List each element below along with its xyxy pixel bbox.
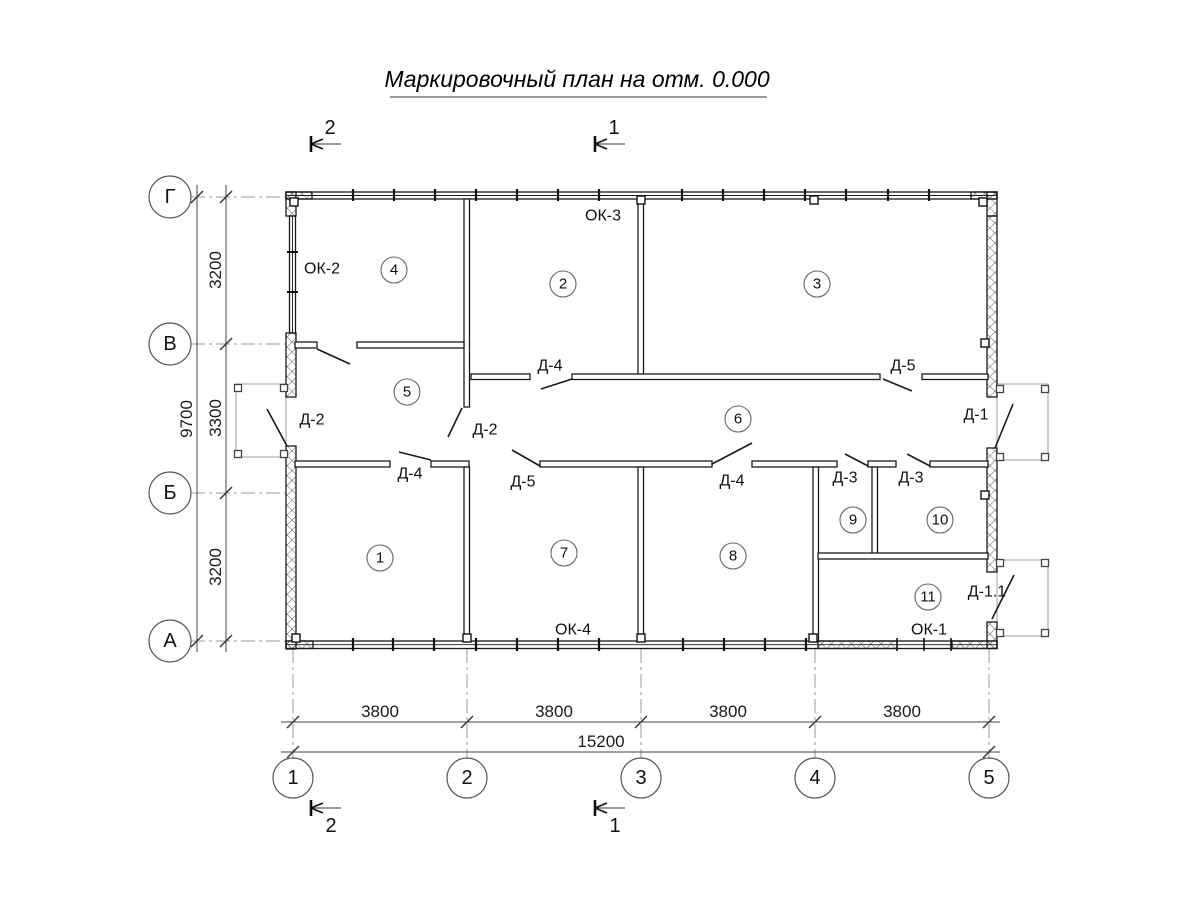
axis-lines: [191, 197, 989, 758]
wall-joint-marker: [290, 198, 298, 206]
corridor-lower-wall-4: [752, 461, 837, 467]
axis-col-5: 5: [969, 758, 1009, 798]
corridor-lower-wall-1: [295, 461, 390, 467]
door-mark-d4-room2: Д-4: [537, 358, 562, 375]
wall-hatch-bottom-right: [952, 641, 997, 649]
section-mark-1-bottom: 1: [595, 800, 625, 837]
room-number-label: 6: [734, 411, 742, 428]
axis-row-v: В: [149, 323, 191, 365]
room-number-label: 10: [932, 512, 949, 529]
wall-joint-marker: [463, 634, 471, 642]
room-11: 11: [915, 584, 941, 610]
axis-label: 3: [635, 767, 646, 789]
partition-room7-room8: [638, 467, 644, 641]
door-mark-d2-entrance: Д-2: [299, 412, 324, 429]
door-leaf-d2-hall: [448, 408, 462, 437]
corridor-lower-wall-6: [930, 461, 988, 467]
partition-room4-room2: [464, 199, 470, 407]
dim-3800-4: 3800: [883, 702, 921, 721]
room-7: 7: [551, 540, 577, 566]
door-mark-d1: Д-1: [963, 407, 988, 424]
wall-hatch-left-bottom: [286, 446, 296, 649]
dim-3800-2: 3800: [535, 702, 573, 721]
door-leaf-d3-room10: [907, 454, 930, 466]
corridor-upper-wall-2: [572, 374, 880, 380]
wall-joint-marker: [292, 634, 300, 642]
wall-hatch-bottom-mid: [818, 641, 897, 649]
porch-post: [235, 451, 242, 458]
room-number-label: 8: [729, 548, 737, 565]
room-2: 2: [550, 271, 576, 297]
room-6: 6: [725, 406, 751, 432]
axis-label: 2: [461, 767, 472, 789]
partition-room910-room11: [818, 553, 988, 559]
wall-hatch-right-upper: [987, 216, 997, 397]
door-mark-d4-room1: Д-4: [397, 466, 422, 483]
section-number: 1: [608, 117, 619, 139]
porch-post: [1042, 386, 1049, 393]
partition-room1-room7: [464, 467, 470, 641]
wall-hatch-right-top: [987, 192, 997, 216]
porch-post: [235, 385, 242, 392]
porch-post: [997, 454, 1004, 461]
wall-joint-marker: [637, 196, 645, 204]
page-title: Маркировочный план на отм. 0.000: [384, 66, 769, 92]
dim-3800-3: 3800: [709, 702, 747, 721]
grid-axis-bubbles: Г В Б А 1 2 3 4 5: [149, 176, 1009, 798]
porch-post: [997, 560, 1004, 567]
window-marks: ОК-2 ОК-3 ОК-4 ОК-1: [304, 208, 947, 639]
room-5: 5: [394, 379, 420, 405]
door-leaf-d2-entrance: [267, 409, 287, 446]
door-leaf-d5-room3: [883, 379, 912, 391]
wall-joint-marker: [979, 198, 987, 206]
drawing-sheet: Маркировочный план на отм. 0.000 3800 38…: [0, 0, 1200, 900]
wall-joint-marker: [809, 634, 817, 642]
dim-9700: 9700: [177, 400, 196, 438]
room-number-label: 4: [390, 262, 398, 279]
partition-room2-room3: [638, 199, 644, 375]
axis-label: 1: [287, 767, 298, 789]
room-number-label: 5: [403, 384, 411, 401]
porch-post: [1042, 454, 1049, 461]
dim-3300: 3300: [206, 399, 225, 437]
door-leaf-d1: [995, 404, 1013, 448]
door-leaf-d4-room1: [399, 452, 431, 460]
section-mark-1-top: 1: [595, 117, 625, 152]
section-number: 1: [609, 815, 620, 837]
door-mark-d3-room10: Д-3: [898, 470, 923, 487]
door-mark-d1-1: Д-1.1: [968, 584, 1007, 601]
floor-plan-drawing: Маркировочный план на отм. 0.000 3800 38…: [0, 0, 1200, 900]
upper-right-porch: [997, 384, 1048, 460]
dim-3800-1: 3800: [361, 702, 399, 721]
room-number-label: 7: [560, 545, 568, 562]
section-number: 2: [324, 117, 335, 139]
axis-col-2: 2: [447, 758, 487, 798]
drawing-title-block: Маркировочный план на отм. 0.000: [384, 66, 769, 97]
section-mark-2-bottom: 2: [311, 800, 341, 837]
room-3: 3: [804, 271, 830, 297]
porch-post: [281, 451, 288, 458]
corridor-lower-wall-5: [868, 461, 896, 467]
axis-label: Б: [163, 482, 176, 504]
door-leaf-d3-room9: [845, 454, 868, 466]
porch-post: [997, 630, 1004, 637]
room-4: 4: [381, 257, 407, 283]
room-8: 8: [720, 543, 746, 569]
room-number-label: 3: [813, 276, 821, 293]
porch-post: [1042, 630, 1049, 637]
door-leaf-hall-room4: [317, 349, 350, 364]
room-number-label: 9: [849, 512, 857, 529]
room-number-label: 1: [376, 550, 384, 567]
room-10: 10: [927, 507, 953, 533]
corridor-upper-wall-3: [922, 374, 988, 380]
room-9: 9: [840, 507, 866, 533]
corridor-lower-wall-3: [540, 461, 712, 467]
room-number-label: 11: [920, 589, 936, 606]
door-mark-d5-room7: Д-5: [510, 474, 535, 491]
partition-room4-room5: [357, 342, 464, 348]
axis-col-4: 4: [795, 758, 835, 798]
axis-row-a: А: [149, 620, 191, 662]
door-mark-d5-room3: Д-5: [890, 358, 915, 375]
axis-row-b: Б: [149, 472, 191, 514]
corridor-upper-wall-1: [471, 374, 530, 380]
left-porch: [236, 384, 286, 457]
axis-col-1: 1: [273, 758, 313, 798]
axis-label: 4: [809, 767, 820, 789]
section-mark-2-top: 2: [311, 117, 341, 152]
door-mark-d2-hall: Д-2: [472, 422, 497, 439]
window-mark-ok3: ОК-3: [585, 208, 621, 225]
axis-row-g: Г: [149, 176, 191, 218]
wall-joint-marker: [981, 339, 989, 347]
room-1: 1: [367, 545, 393, 571]
door-mark-d4-room8: Д-4: [719, 473, 744, 490]
entry-wall-stub: [295, 342, 317, 348]
window-mark-ok4: ОК-4: [555, 622, 591, 639]
porch-post: [281, 385, 288, 392]
axis-label: Г: [165, 186, 176, 208]
door-leaf-d5-room7: [512, 450, 540, 466]
wall-joint-marker: [637, 634, 645, 642]
porch-post: [997, 386, 1004, 393]
interior-partitions: [295, 199, 988, 641]
dim-15200: 15200: [577, 732, 624, 751]
window-mark-ok1: ОК-1: [911, 622, 947, 639]
axis-col-3: 3: [621, 758, 661, 798]
door-leaf-d4-room2: [541, 379, 572, 389]
door-leaf-d4-room8: [712, 443, 752, 464]
wall-joint-marker: [810, 196, 818, 204]
partition-room9-room10: [872, 467, 878, 556]
porch-post: [1042, 560, 1049, 567]
room-number-label: 2: [559, 276, 567, 293]
dim-3200-bottom: 3200: [206, 548, 225, 586]
axis-label: В: [163, 333, 176, 355]
door-mark-d3-room9: Д-3: [832, 470, 857, 487]
axis-label: А: [163, 630, 177, 652]
dim-3200-top: 3200: [206, 251, 225, 289]
corridor-lower-wall-2: [431, 461, 469, 467]
window-mark-ok2: ОК-2: [304, 261, 340, 278]
section-number: 2: [325, 815, 336, 837]
axis-label: 5: [983, 767, 994, 789]
wall-joint-marker: [981, 491, 989, 499]
